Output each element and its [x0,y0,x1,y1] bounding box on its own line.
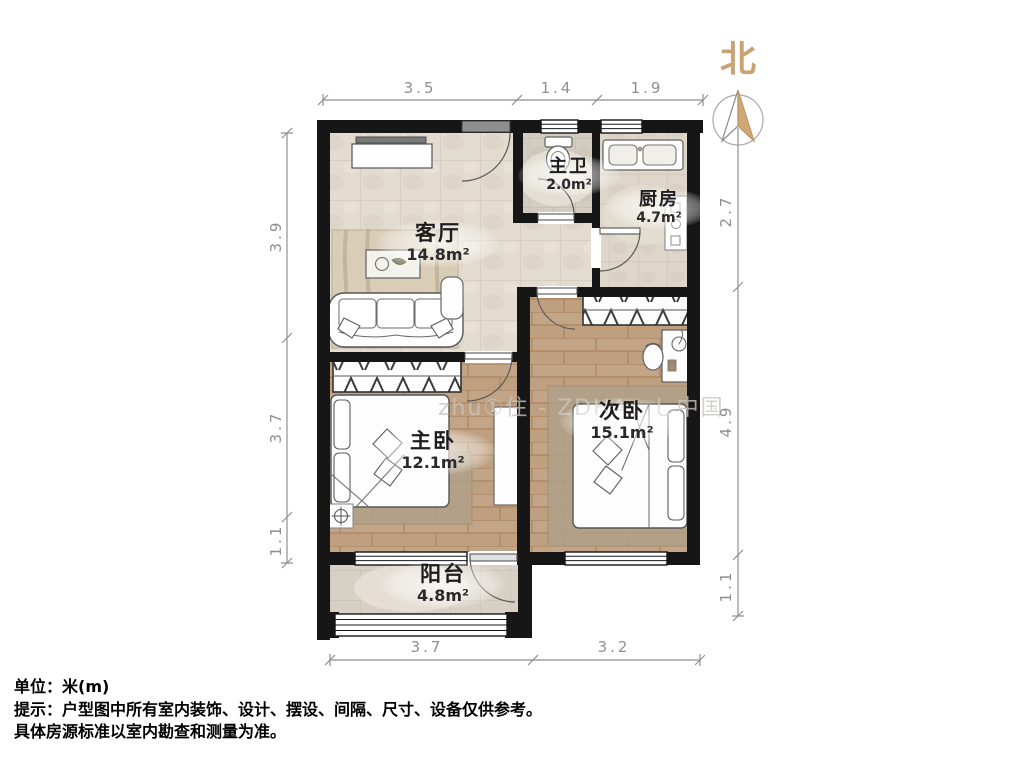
balcony-window [335,614,507,636]
tv-unit [352,137,432,168]
master-wardrobe [333,360,461,392]
toilet [545,137,572,172]
side-table [441,277,463,319]
ceiling-light-symbol [329,504,353,528]
floor-plan-page: zhu①住 - ZDHA し中国 客厅 14.8m² 主卫 2.0m² 厨房 4… [0,0,1024,768]
second-wardrobe [583,295,693,325]
desk-chair [643,344,663,371]
compass-arrow-right [738,90,754,141]
balcony-floor-highlight [354,564,470,612]
kitchen-window [601,120,642,133]
floor-plan-drawing [0,0,1024,768]
second-bed [573,404,687,528]
kitchen-sink-counter [603,140,683,170]
master-cabinet [494,407,518,505]
note-tip1: 提示：户型图中所有室内装饰、设计、摆设、间隔、尺寸、设备仅供参考。 [14,699,542,722]
master-bed [331,395,449,507]
note-unit: 单位：米(m) [14,676,542,699]
second-bedroom-window [565,552,667,565]
note-tip2: 具体房源标准以室内勘查和测量为准。 [14,721,542,744]
kitchen-stove-counter [665,196,687,250]
bathroom-window [541,120,578,133]
coffee-table [366,250,420,278]
compass-arrow-left [722,90,738,141]
north-label: 北 [710,40,766,80]
master-balcony-window [355,552,467,565]
footnotes: 单位：米(m) 提示：户型图中所有室内装饰、设计、摆设、间隔、尺寸、设备仅供参考… [14,676,542,744]
